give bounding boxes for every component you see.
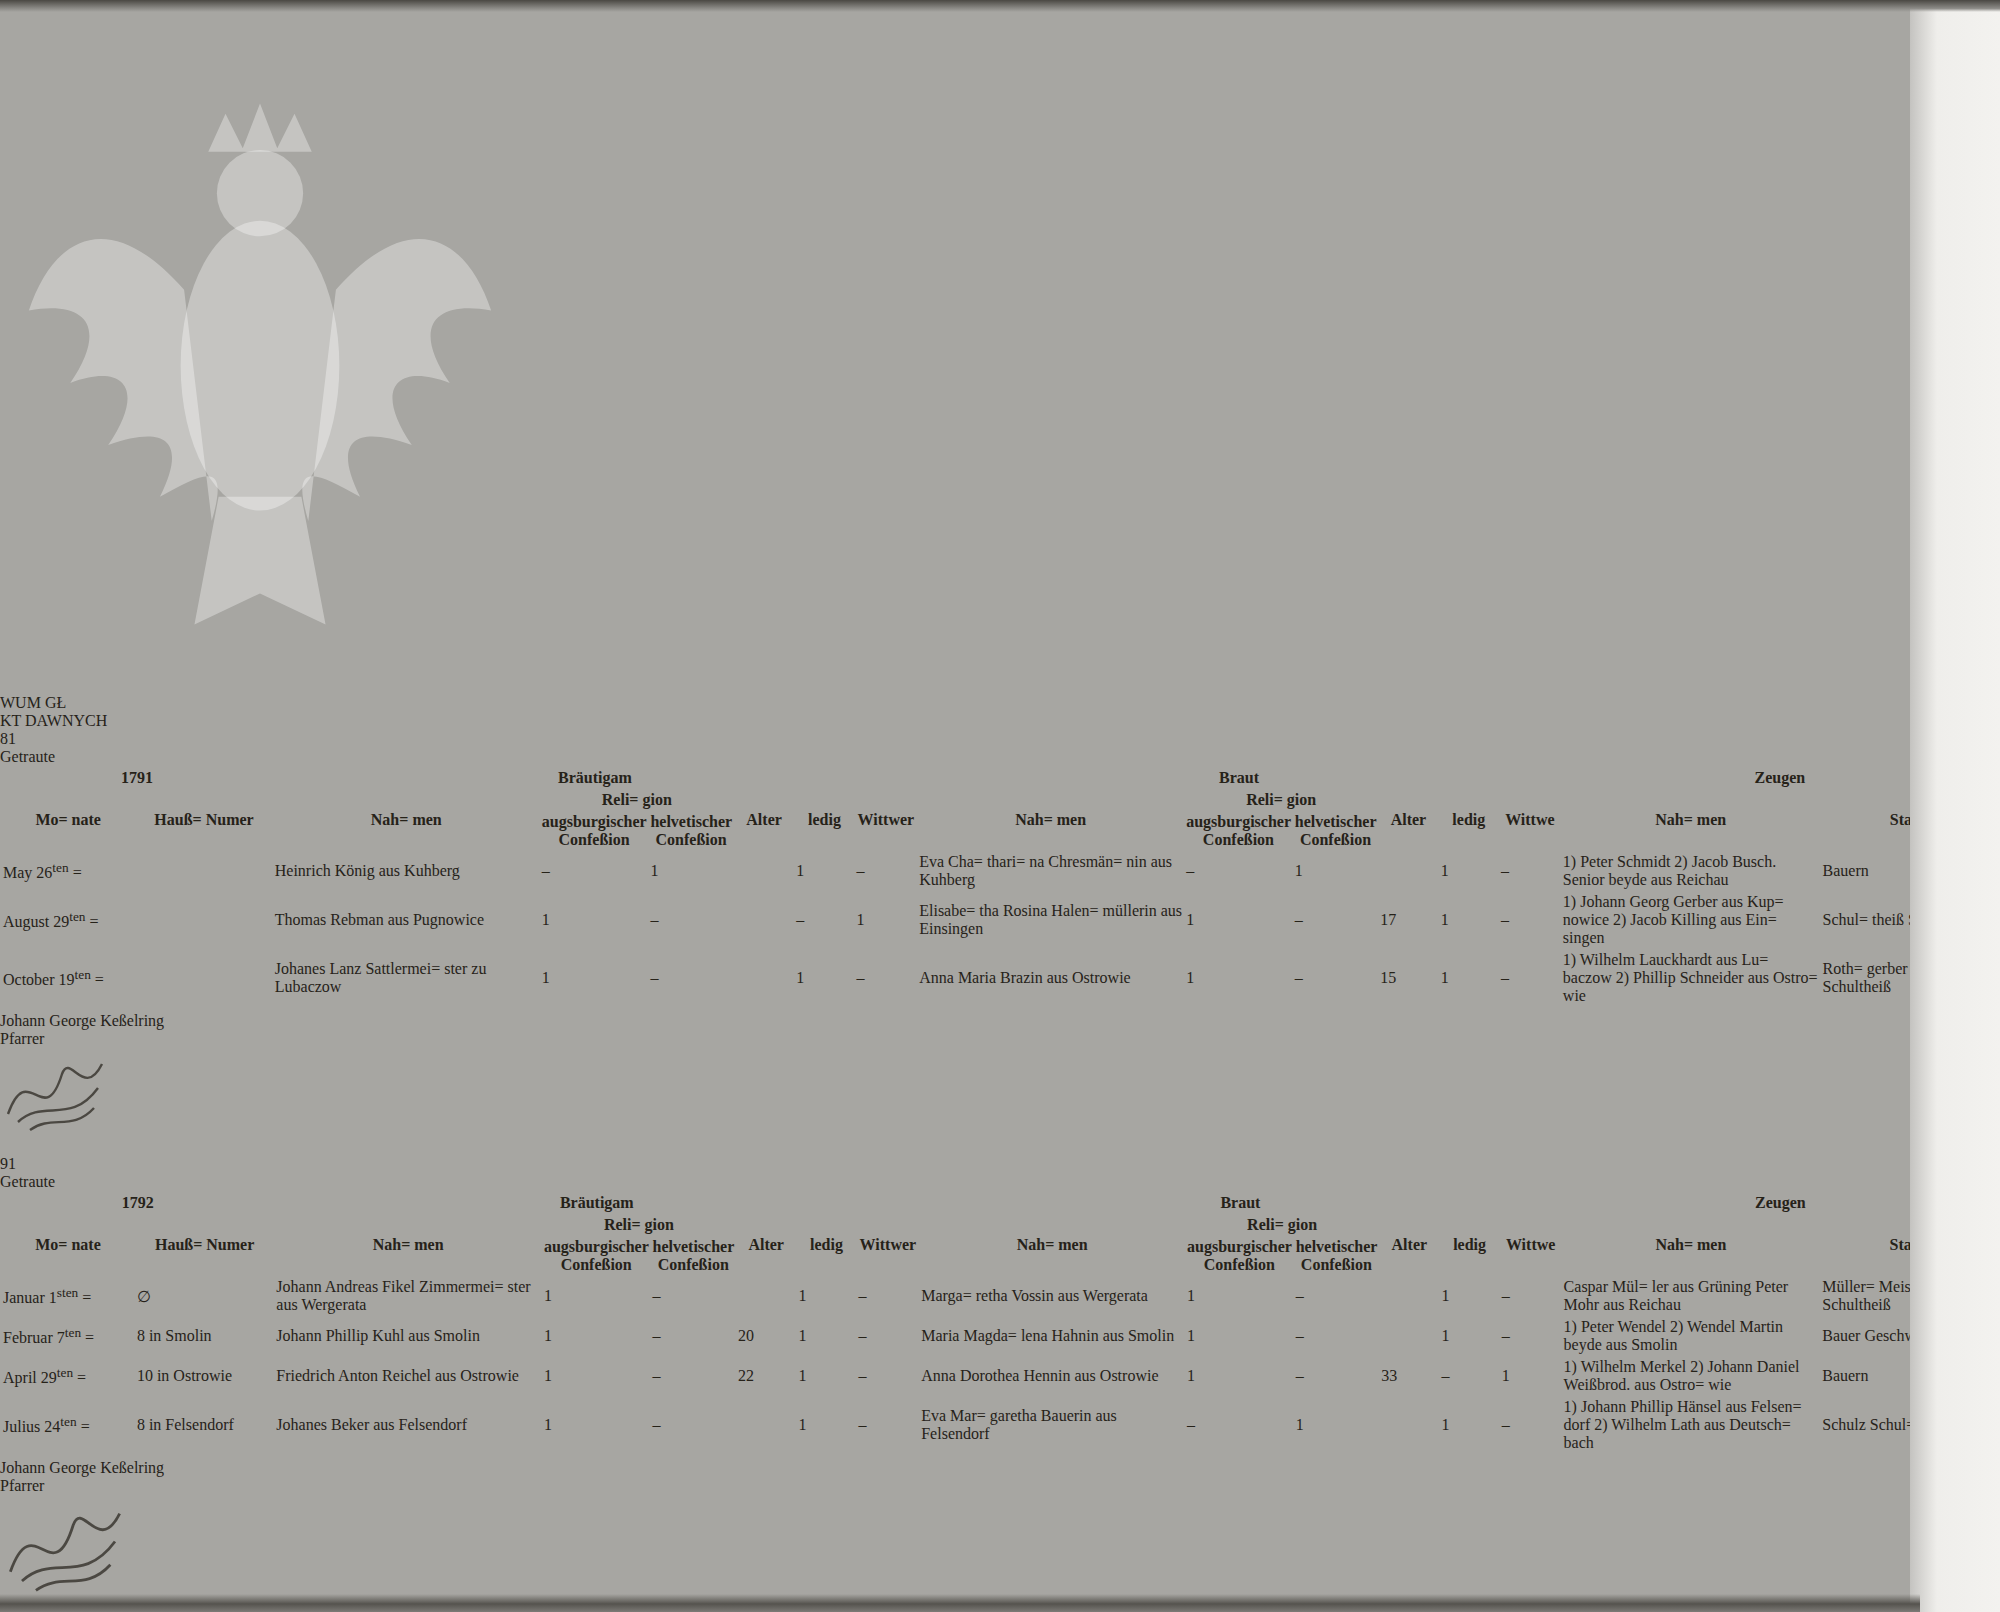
cell-groom-single: 1 <box>797 1357 855 1395</box>
header-month: Mo= nate <box>2 790 134 850</box>
cell-groom-widower: – <box>858 1317 919 1355</box>
header-house-number: Hauß= Numer <box>136 790 271 850</box>
cell-groom-age <box>735 852 793 890</box>
cell-groom-religion-augsburg: 1 <box>543 1317 650 1355</box>
cell-witness-names: Caspar Mül= ler aus Grüning Peter Mohr a… <box>1563 1277 1820 1315</box>
year-label: 1791 <box>2 768 272 788</box>
table-row: August 29ten = Thomas Rebman aus Pugnowi… <box>2 892 1998 948</box>
header-groom-age: Alter <box>735 790 793 850</box>
book-binding-seam <box>974 6 994 1602</box>
scan-paper-edge <box>1910 0 2000 1612</box>
cell-bride-age: 17 <box>1379 892 1437 948</box>
cell-bride-religion-helvetic: 1 <box>1294 852 1377 890</box>
signature-flourish <box>0 1495 130 1595</box>
day-flourish: = <box>82 1289 91 1306</box>
register-scan: WUM GŁ KT DAWNYCH 81 Getraute 1791 Bräut… <box>0 0 2000 1612</box>
cell-groom-widower: – <box>858 1397 919 1453</box>
header-bride-religion: Reli= gion <box>1186 1215 1378 1235</box>
day-of-month: 29ten <box>53 913 85 930</box>
month-name: August <box>3 913 49 930</box>
cell-groom-single: 1 <box>797 1277 855 1315</box>
header-groom-widower: Wittwer <box>856 790 917 850</box>
cell-bride-religion-helvetic: – <box>1295 1317 1378 1355</box>
section-header-row: 1792 Bräutigam Braut Zeugen <box>2 1193 1998 1213</box>
table-row: October 19ten = Johanes Lanz Sattlermei=… <box>2 950 1998 1006</box>
cell-house-number: ∅ <box>136 1277 273 1315</box>
header-groom-age: Alter <box>737 1215 795 1275</box>
ink-smudge <box>0 1138 86 1147</box>
cell-groom-age: 22 <box>737 1357 795 1395</box>
cell-bride-single: 1 <box>1440 892 1498 948</box>
header-groom-widower: Wittwer <box>858 1215 919 1275</box>
cell-groom-widower: – <box>858 1277 919 1315</box>
cell-month: August 29ten = <box>2 892 134 948</box>
cell-witness-names: 1) Peter Schmidt 2) Jacob Busch. Senior … <box>1562 852 1820 890</box>
pastor-signature: Johann George Keßelring Pfarrer <box>0 1459 2000 1599</box>
cell-bride-single: – <box>1441 1357 1499 1395</box>
cell-groom-name: Johanes Lanz Sattlermei= ster zu Lubaczo… <box>274 950 539 1006</box>
watermark-fragment: WUM GŁ <box>0 694 2000 712</box>
day-flourish: = <box>81 1418 90 1435</box>
header-witness-names: Nah= men <box>1563 1215 1820 1275</box>
cell-bride-name: Elisabe= tha Rosina Halen= müllerin aus … <box>918 892 1183 948</box>
year-label: 1792 <box>2 1193 273 1213</box>
cell-bride-age <box>1380 1317 1438 1355</box>
cell-witness-names: 1) Johann Georg Gerber aus Kup= nowice 2… <box>1562 892 1820 948</box>
day-flourish: = <box>77 1369 86 1386</box>
cell-bride-religion-augsburg: – <box>1186 1397 1293 1453</box>
cell-groom-name: Thomas Rebman aus Pugnowice <box>274 892 539 948</box>
cell-bride-religion-helvetic: – <box>1294 892 1377 948</box>
day-of-month: 1sten <box>49 1289 78 1306</box>
page-number: 81 <box>0 730 2000 748</box>
day-of-month: 19ten <box>59 971 91 988</box>
cell-month: May 26ten = <box>2 852 134 890</box>
cell-witness-names: 1) Johann Phillip Hänsel aus Felsen= dor… <box>1563 1397 1820 1453</box>
day-of-month: 24ten <box>44 1418 76 1435</box>
cell-bride-single: 1 <box>1440 852 1498 890</box>
page-heading: Getraute <box>0 748 2000 766</box>
cell-house-number <box>136 950 271 1006</box>
eagle-watermark-icon <box>0 0 520 690</box>
table-row: April 29ten = 10 in Ostrowie Friedrich A… <box>2 1357 1998 1395</box>
footer-row <box>2 1008 1998 1010</box>
cell-bride-religion-augsburg: – <box>1185 852 1292 890</box>
cell-groom-name: Friedrich Anton Reichel aus Ostrowie <box>275 1357 541 1395</box>
cell-groom-single: 1 <box>797 1317 855 1355</box>
cell-bride-religion-helvetic: – <box>1295 1357 1378 1395</box>
header-groom-single: ledig <box>795 790 853 850</box>
month-name: October <box>3 971 55 988</box>
cell-bride-religion-helvetic: – <box>1295 1277 1378 1315</box>
header-bride-name: Nah= men <box>918 790 1183 850</box>
cell-house-number: 8 in Felsendorf <box>136 1397 273 1453</box>
cell-bride-name: Marga= retha Vossin aus Wergerata <box>920 1277 1184 1315</box>
month-name: Julius <box>3 1418 40 1435</box>
header-bride-widow: Wittwe <box>1501 1215 1561 1275</box>
section-header-row: 1791 Bräutigam Braut Zeugen <box>2 768 1998 788</box>
pastor-signature: Johann George Keßelring Pfarrer <box>0 1012 2000 1138</box>
page-heading: Getraute <box>0 1173 2000 1191</box>
cell-bride-widow: 1 <box>1501 1357 1561 1395</box>
cell-groom-age: 20 <box>737 1317 795 1355</box>
day-of-month: 26ten <box>36 864 68 881</box>
column-header-row: Mo= nate Hauß= Numer Nah= men Reli= gion… <box>2 1215 1998 1235</box>
cell-groom-widower: – <box>856 950 917 1006</box>
cell-bride-name: Anna Maria Brazin aus Ostrowie <box>918 950 1183 1006</box>
cell-bride-religion-augsburg: 1 <box>1185 892 1292 948</box>
cell-groom-age <box>735 950 793 1006</box>
cell-groom-widower: – <box>856 852 917 890</box>
cell-bride-widow: – <box>1500 892 1560 948</box>
table-row: Julius 24ten = 8 in Felsendorf Johanes B… <box>2 1397 1998 1453</box>
cell-bride-widow: – <box>1501 1317 1561 1355</box>
day-of-month: 7ten <box>57 1329 81 1346</box>
header-confession-helvetic: helvetischer Confeßion <box>1295 1237 1378 1275</box>
header-confession-augsburg: augsburgischer Confeßion <box>1185 812 1292 850</box>
header-confession-helvetic: helvetischer Confeßion <box>652 1237 735 1275</box>
header-house-number: Hauß= Numer <box>136 1215 273 1275</box>
cell-groom-age <box>735 892 793 948</box>
month-name: Februar <box>3 1329 53 1346</box>
cell-bride-single: 1 <box>1441 1317 1499 1355</box>
cell-bride-religion-augsburg: 1 <box>1185 950 1292 1006</box>
signature-title: Pfarrer <box>0 1477 2000 1495</box>
cell-witness-names: 1) Wilhelm Lauckhardt aus Lu= baczow 2) … <box>1562 950 1820 1006</box>
scan-bottom-edge <box>0 1594 1920 1612</box>
header-confession-helvetic: helvetischer Confeßion <box>649 812 732 850</box>
cell-groom-age <box>737 1397 795 1453</box>
header-groom-single: ledig <box>797 1215 855 1275</box>
cell-groom-name: Johann Phillip Kuhl aus Smolin <box>275 1317 541 1355</box>
cell-house-number <box>136 892 271 948</box>
cell-groom-religion-augsburg: 1 <box>543 1397 650 1453</box>
month-name: May <box>3 864 32 881</box>
header-bride-single: ledig <box>1440 790 1498 850</box>
signature-name: Johann George Keßelring <box>0 1459 2000 1477</box>
header-groom: Bräutigam <box>274 768 916 788</box>
cell-bride-religion-helvetic: – <box>1294 950 1377 1006</box>
header-confession-augsburg: augsburgischer Confeßion <box>1186 1237 1293 1275</box>
header-bride-name: Nah= men <box>920 1215 1184 1275</box>
cell-groom-religion-augsburg: 1 <box>543 1357 650 1395</box>
cell-groom-single: 1 <box>797 1397 855 1453</box>
cell-groom-religion-helvetic: – <box>649 950 732 1006</box>
cell-groom-single: 1 <box>795 950 853 1006</box>
cell-bride-widow: – <box>1500 950 1560 1006</box>
cell-month: Februar 7ten = <box>2 1317 134 1355</box>
header-bride: Braut <box>918 768 1560 788</box>
header-bride-age: Alter <box>1380 1215 1438 1275</box>
cell-groom-religion-helvetic: – <box>652 1277 735 1315</box>
month-name: Januar <box>3 1289 45 1306</box>
header-groom: Bräutigam <box>275 1193 918 1213</box>
cell-bride-age <box>1380 1277 1438 1315</box>
header-bride-single: ledig <box>1441 1215 1499 1275</box>
table-row: Januar 1sten = ∅ Johann Andreas Fikel Zi… <box>2 1277 1998 1315</box>
cell-groom-name: Johann Andreas Fikel Zimmermei= ster aus… <box>275 1277 541 1315</box>
footer-row <box>2 1455 1998 1457</box>
ink-smudge <box>0 1147 98 1155</box>
cell-witness-names: 1) Wilhelm Merkel 2) Johann Daniel Weißb… <box>1563 1357 1820 1395</box>
cell-groom-religion-helvetic: – <box>652 1357 735 1395</box>
day-of-month: 29ten <box>41 1369 73 1386</box>
day-flourish: = <box>95 971 104 988</box>
cell-bride-name: Maria Magda= lena Hahnin aus Smolin <box>920 1317 1184 1355</box>
header-bride-widow: Wittwe <box>1500 790 1560 850</box>
header-groom-religion: Reli= gion <box>541 790 733 810</box>
cell-house-number <box>136 852 271 890</box>
cell-groom-religion-augsburg: – <box>541 852 648 890</box>
cell-groom-religion-augsburg: 1 <box>543 1277 650 1315</box>
cell-bride-age <box>1379 852 1437 890</box>
cell-bride-name: Eva Mar= garetha Bauerin aus Felsendorf <box>920 1397 1184 1453</box>
cell-month: Januar 1sten = <box>2 1277 134 1315</box>
table-row: Februar 7ten = 8 in Smolin Johann Philli… <box>2 1317 1998 1355</box>
cell-month: October 19ten = <box>2 950 134 1006</box>
signature-name: Johann George Keßelring <box>0 1012 2000 1030</box>
cell-witness-names: 1) Peter Wendel 2) Wendel Martin beyde a… <box>1563 1317 1820 1355</box>
header-bride: Braut <box>920 1193 1560 1213</box>
header-groom-name: Nah= men <box>275 1215 541 1275</box>
cell-house-number: 8 in Smolin <box>136 1317 273 1355</box>
cell-groom-widower: – <box>858 1357 919 1395</box>
cell-bride-religion-helvetic: 1 <box>1295 1397 1378 1453</box>
cell-bride-single: 1 <box>1441 1277 1499 1315</box>
header-witness-names: Nah= men <box>1562 790 1820 850</box>
header-groom-religion: Reli= gion <box>543 1215 735 1235</box>
cell-groom-name: Heinrich König aus Kuhberg <box>274 852 539 890</box>
cell-bride-age: 33 <box>1380 1357 1438 1395</box>
cell-bride-religion-augsburg: 1 <box>1186 1357 1293 1395</box>
scan-top-edge <box>0 0 2000 12</box>
cell-month: April 29ten = <box>2 1357 134 1395</box>
page-left: 81 Getraute 1791 Bräutigam Braut Zeugen … <box>0 730 2000 1155</box>
page-number: 91 <box>0 1155 2000 1173</box>
column-header-row: Mo= nate Hauß= Numer Nah= men Reli= gion… <box>2 790 1998 810</box>
cell-bride-age <box>1380 1397 1438 1453</box>
header-bride-age: Alter <box>1379 790 1437 850</box>
cell-groom-religion-helvetic: – <box>649 892 732 948</box>
cell-bride-name: Eva Cha= thari= na Chresmän= nin aus Kuh… <box>918 852 1183 890</box>
cell-bride-widow: – <box>1501 1397 1561 1453</box>
cell-bride-name: Anna Dorothea Hennin aus Ostrowie <box>920 1357 1184 1395</box>
table-row: May 26ten = Heinrich König aus Kuhberg –… <box>2 852 1998 890</box>
header-bride-religion: Reli= gion <box>1185 790 1377 810</box>
signature-flourish <box>0 1048 110 1134</box>
cell-bride-religion-augsburg: 1 <box>1186 1277 1293 1315</box>
day-flourish: = <box>85 1329 94 1346</box>
cell-groom-religion-helvetic: – <box>652 1397 735 1453</box>
header-confession-helvetic: helvetischer Confeßion <box>1294 812 1377 850</box>
cell-bride-religion-augsburg: 1 <box>1186 1317 1293 1355</box>
cell-bride-widow: – <box>1500 852 1560 890</box>
day-flourish: = <box>73 864 82 881</box>
cell-month: Julius 24ten = <box>2 1397 134 1453</box>
header-confession-augsburg: augsburgischer Confeßion <box>543 1237 650 1275</box>
cell-groom-religion-helvetic: 1 <box>649 852 732 890</box>
cell-groom-single: 1 <box>795 852 853 890</box>
cell-groom-widower: 1 <box>856 892 917 948</box>
cell-bride-single: 1 <box>1441 1397 1499 1453</box>
cell-groom-name: Johanes Beker aus Felsendorf <box>275 1397 541 1453</box>
cell-house-number: 10 in Ostrowie <box>136 1357 273 1395</box>
cell-bride-widow: – <box>1501 1277 1561 1315</box>
watermark-fragment: KT DAWNYCH <box>0 712 2000 730</box>
cell-bride-single: 1 <box>1440 950 1498 1006</box>
day-flourish: = <box>90 913 99 930</box>
cell-groom-age <box>737 1277 795 1315</box>
cell-groom-single: – <box>795 892 853 948</box>
cell-groom-religion-augsburg: 1 <box>541 950 648 1006</box>
page-right: 91 Getraute 1792 Bräutigam Braut Zeugen … <box>0 1155 2000 1612</box>
month-name: April <box>3 1369 37 1386</box>
cell-bride-age: 15 <box>1379 950 1437 1006</box>
cell-groom-religion-helvetic: – <box>652 1317 735 1355</box>
header-month: Mo= nate <box>2 1215 134 1275</box>
header-confession-augsburg: augsburgischer Confeßion <box>541 812 648 850</box>
cell-groom-religion-augsburg: 1 <box>541 892 648 948</box>
signature-title: Pfarrer <box>0 1030 2000 1048</box>
header-groom-name: Nah= men <box>274 790 539 850</box>
